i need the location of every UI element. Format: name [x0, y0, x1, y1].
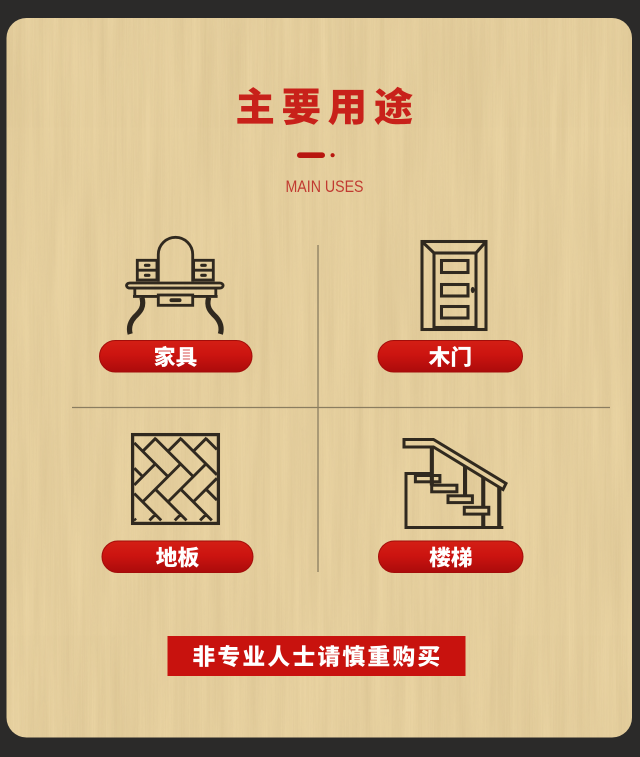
svg-text:MAIN USES: MAIN USES [286, 177, 364, 196]
